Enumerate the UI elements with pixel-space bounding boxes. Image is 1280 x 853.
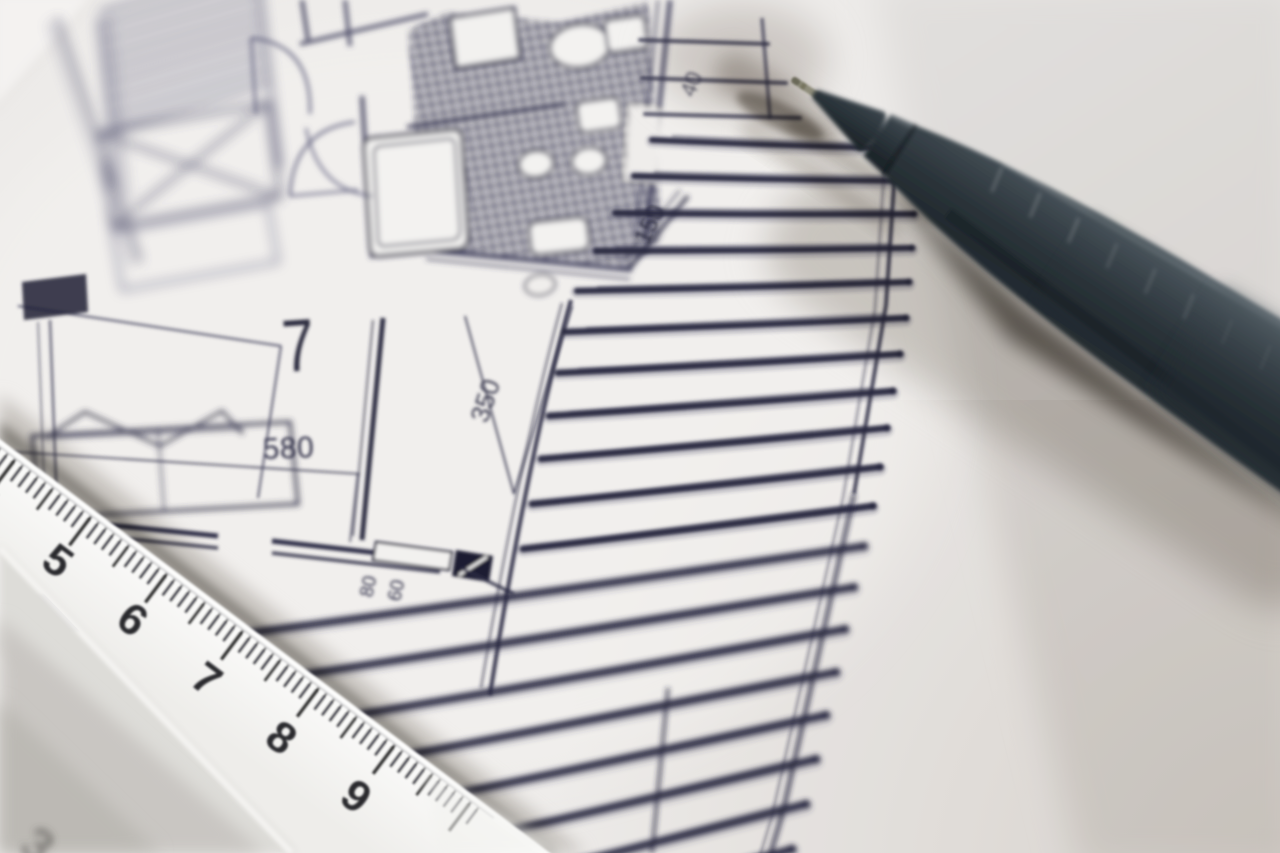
svg-text:80: 80 (356, 574, 381, 599)
svg-text:580: 580 (262, 431, 315, 466)
svg-text:60: 60 (384, 578, 409, 603)
svg-text:7: 7 (279, 303, 317, 388)
